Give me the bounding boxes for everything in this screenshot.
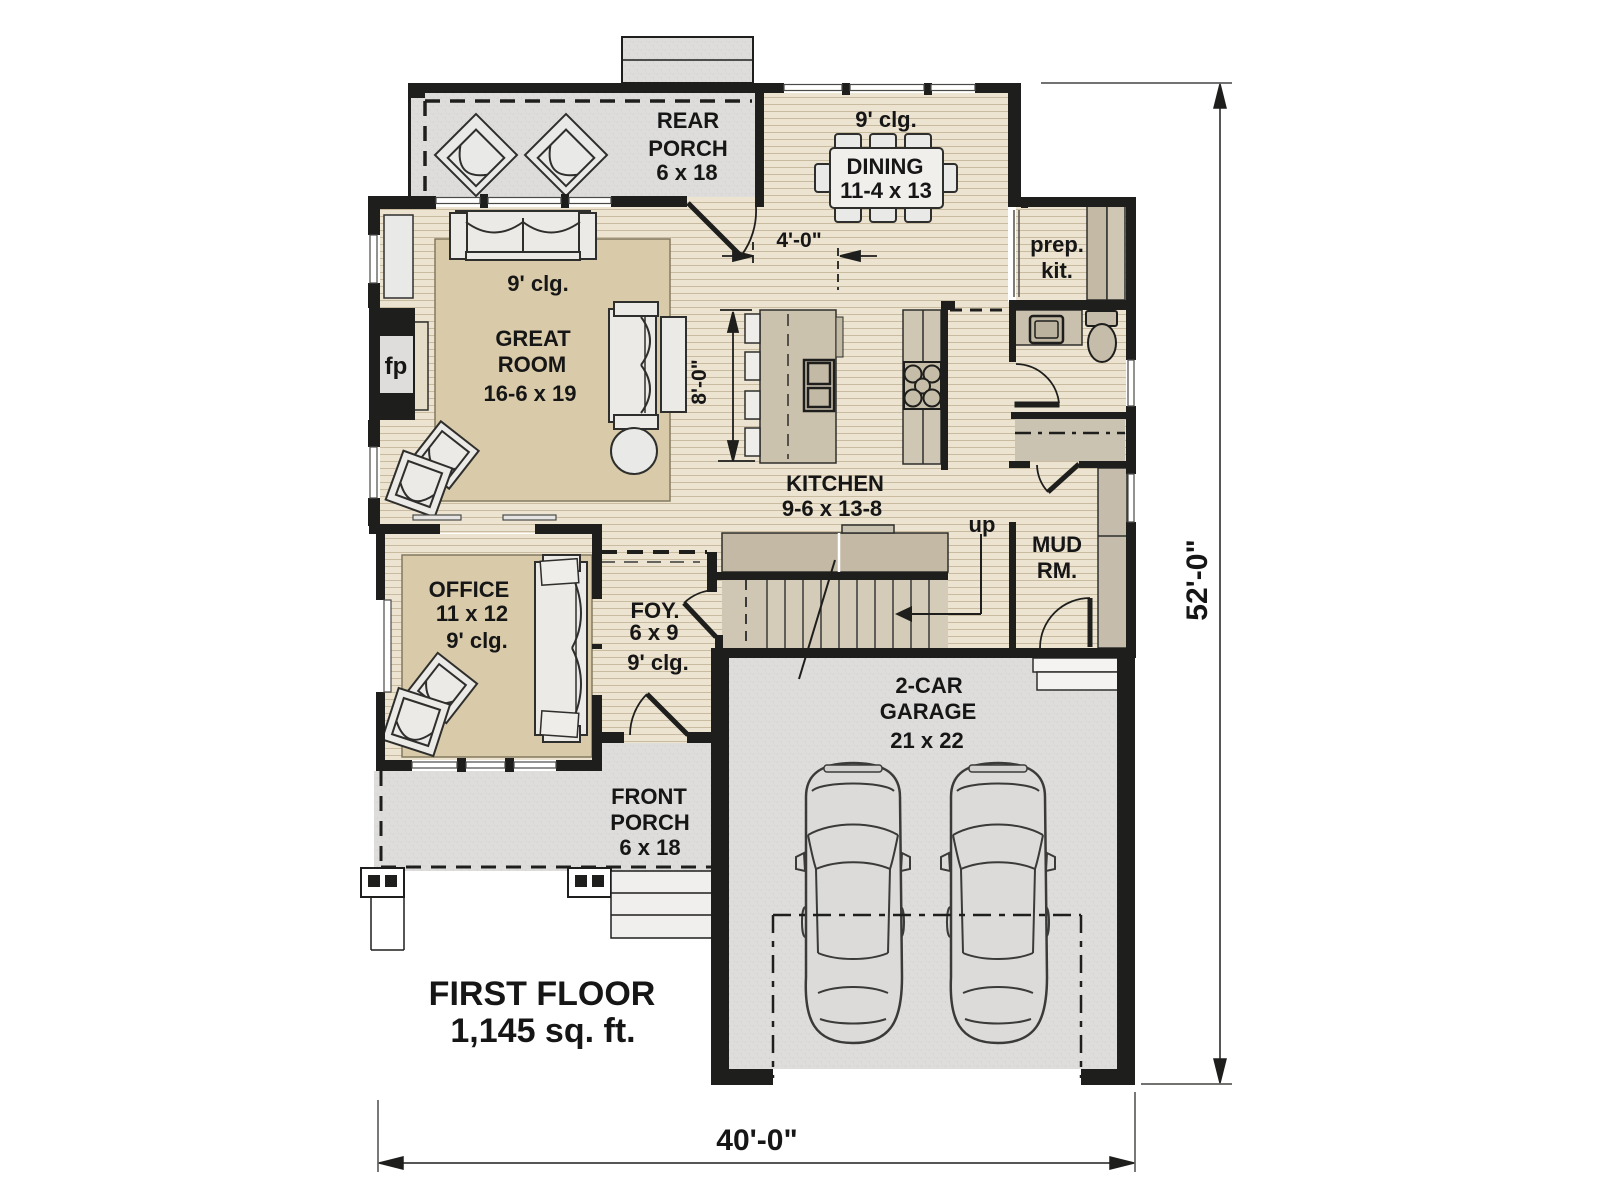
svg-text:OFFICE: OFFICE — [429, 577, 510, 602]
svg-text:8'-0": 8'-0" — [688, 359, 711, 404]
svg-text:16-6 x 19: 16-6 x 19 — [484, 381, 577, 406]
svg-text:2-CAR: 2-CAR — [895, 673, 962, 698]
svg-text:prep.: prep. — [1030, 232, 1084, 257]
svg-text:11 x 12: 11 x 12 — [436, 601, 508, 626]
svg-text:kit.: kit. — [1041, 258, 1073, 283]
svg-text:MUD: MUD — [1032, 532, 1082, 557]
svg-text:PORCH: PORCH — [610, 810, 689, 835]
svg-text:PORCH: PORCH — [648, 136, 727, 161]
svg-text:6 x 18: 6 x 18 — [619, 835, 680, 860]
svg-text:GARAGE: GARAGE — [880, 699, 977, 724]
svg-text:21 x 22: 21 x 22 — [890, 728, 963, 753]
svg-text:GREAT: GREAT — [495, 326, 571, 351]
svg-text:9' clg.: 9' clg. — [855, 107, 916, 132]
svg-text:up: up — [969, 512, 996, 537]
svg-text:KITCHEN: KITCHEN — [786, 471, 884, 496]
svg-text:1,145 sq. ft.: 1,145 sq. ft. — [450, 1012, 635, 1050]
svg-text:REAR: REAR — [657, 108, 719, 133]
svg-text:fp: fp — [385, 353, 408, 380]
svg-text:4'-0": 4'-0" — [776, 229, 821, 252]
svg-text:RM.: RM. — [1037, 558, 1077, 583]
svg-text:9' clg.: 9' clg. — [446, 628, 507, 653]
svg-text:6 x 18: 6 x 18 — [656, 160, 717, 185]
svg-text:FIRST FLOOR: FIRST FLOOR — [429, 975, 656, 1013]
svg-text:6 x 9: 6 x 9 — [630, 620, 679, 645]
svg-text:9-6 x 13-8: 9-6 x 13-8 — [782, 496, 882, 521]
svg-text:52'-0": 52'-0" — [1181, 539, 1214, 620]
svg-text:9' clg.: 9' clg. — [627, 650, 688, 675]
svg-text:ROOM: ROOM — [498, 352, 566, 377]
svg-text:40'-0": 40'-0" — [716, 1124, 797, 1157]
svg-text:11-4 x 13: 11-4 x 13 — [840, 178, 932, 203]
svg-text:9' clg.: 9' clg. — [507, 271, 568, 296]
svg-text:FRONT: FRONT — [611, 784, 687, 809]
svg-text:DINING: DINING — [847, 154, 924, 179]
